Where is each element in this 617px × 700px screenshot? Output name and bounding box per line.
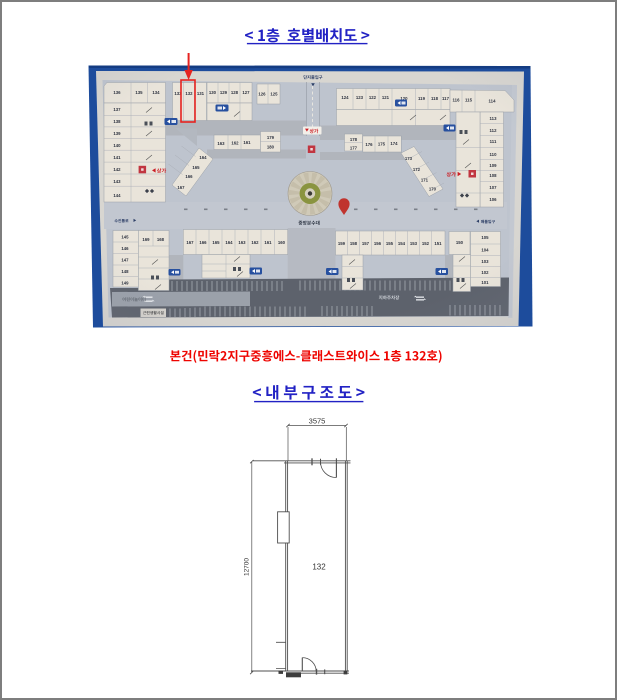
- svg-text:12700: 12700: [244, 558, 251, 576]
- svg-text:132: 132: [312, 563, 326, 572]
- svg-text:3575: 3575: [309, 417, 326, 426]
